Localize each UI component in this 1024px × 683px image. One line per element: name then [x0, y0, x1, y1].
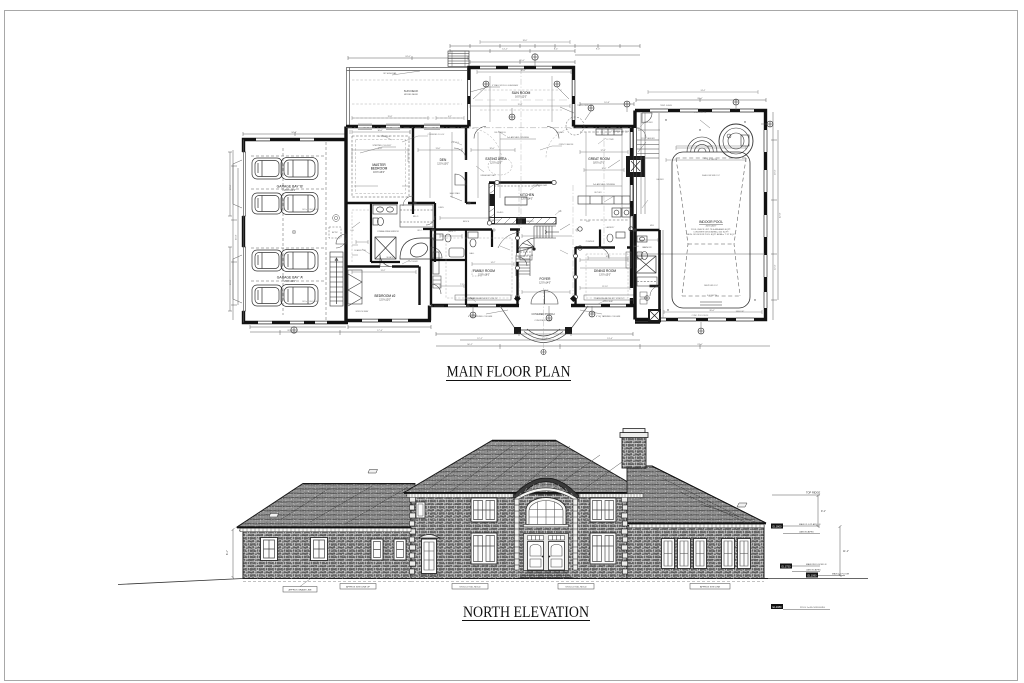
svg-text:TOP RIDGE: TOP RIDGE — [806, 491, 820, 495]
svg-text:TEMP. GLASS: TEMP. GLASS — [660, 104, 673, 107]
svg-text:21'-0": 21'-0" — [519, 60, 525, 62]
svg-text:11'0"x12'0": 11'0"x12'0" — [379, 298, 391, 301]
svg-text:FAMILY ROOM: FAMILY ROOM — [473, 269, 495, 273]
svg-text:15'0"x18'0": 15'0"x18'0" — [478, 273, 490, 276]
svg-text:APPROX SITE LINE: APPROX SITE LINE — [700, 586, 721, 589]
svg-text:CONC. POOL DECK: CONC. POOL DECK — [692, 315, 710, 317]
svg-text:DEEP END 8'-0": DEEP END 8'-0" — [704, 285, 718, 287]
svg-text:20'0"x40'0": 20'0"x40'0" — [706, 226, 717, 228]
svg-text:TEMPERED GL: TEMPERED GL — [694, 112, 707, 114]
svg-text:WOOD DECK: WOOD DECK — [404, 94, 418, 96]
svg-text:INDOOR POOL: INDOOR POOL — [699, 220, 723, 224]
svg-text:8'-1": 8'-1" — [226, 550, 229, 555]
svg-text:UP 16R: UP 16R — [527, 255, 534, 257]
svg-text:DW: DW — [559, 211, 562, 213]
svg-text:PANTRY: PANTRY — [526, 220, 534, 223]
svg-text:6'-2": 6'-2" — [448, 116, 452, 118]
svg-text:42'-8": 42'-8" — [780, 212, 782, 218]
svg-text:NORTH ELEVATION: NORTH ELEVATION — [463, 604, 589, 621]
svg-text:OPEN TO ABOVE: OPEN TO ABOVE — [559, 143, 574, 146]
svg-text:15'-4": 15'-4" — [518, 104, 523, 106]
svg-text:27'-0": 27'-0" — [697, 344, 703, 346]
svg-text:6" SQ TAPERED COLUMN: 6" SQ TAPERED COLUMN — [596, 315, 621, 318]
svg-text:STEAM-FREE MIRROR: STEAM-FREE MIRROR — [377, 230, 399, 233]
svg-text:W.I.C.: W.I.C. — [417, 230, 423, 232]
svg-text:14'-2": 14'-2" — [491, 262, 496, 264]
svg-text:11'-0": 11'-0" — [436, 148, 441, 150]
svg-text:POOL CHECK LIST: TILE AREA AND: POOL CHECK LIST: TILE AREA AND EQPT. — [691, 228, 731, 231]
svg-text:17'-6": 17'-6" — [600, 150, 605, 152]
svg-text:26'0"x23'0": 26'0"x23'0" — [284, 189, 296, 192]
svg-text:BREAKFAST BAR: BREAKFAST BAR — [481, 174, 496, 177]
svg-text:12'-2": 12'-2" — [477, 338, 483, 340]
svg-text:24'-4": 24'-4" — [701, 90, 706, 92]
svg-text:2x6 ARCHED OPENING: 2x6 ARCHED OPENING — [507, 136, 529, 139]
svg-text:POOL LADDER: POOL LADDER — [641, 137, 655, 140]
svg-text:9'-0": 9'-0" — [596, 49, 601, 51]
svg-text:BATH #3: BATH #3 — [643, 246, 652, 249]
svg-text:42" RAISED BAR: 42" RAISED BAR — [533, 184, 548, 187]
svg-text:BENCH: BENCH — [463, 221, 470, 223]
svg-text:22'-6": 22'-6" — [775, 264, 777, 270]
svg-text:TRIPLE PATIO DR: TRIPLE PATIO DR — [577, 104, 593, 107]
svg-text:SUN DECK: SUN DECK — [404, 89, 419, 93]
svg-text:SWIM JET: SWIM JET — [736, 311, 745, 313]
svg-text:COVERED PORCH: COVERED PORCH — [532, 312, 555, 316]
svg-text:APPROX SITE LINE OF: APPROX SITE LINE OF — [346, 586, 370, 589]
svg-text:LANDSCAPED: LANDSCAPED — [806, 568, 821, 571]
svg-text:GARAGE BAY ‘B’: GARAGE BAY ‘B’ — [277, 185, 304, 189]
svg-text:9'-1": 9'-1" — [821, 510, 826, 513]
svg-text:12'-10": 12'-10" — [602, 286, 608, 288]
svg-text:EL1800: EL1800 — [773, 524, 783, 528]
svg-text:BEDROOM: BEDROOM — [371, 167, 388, 171]
svg-text:7'-2": 7'-2" — [460, 284, 464, 286]
svg-text:BEDROOM #2: BEDROOM #2 — [375, 294, 396, 298]
svg-text:ISLAND: ISLAND — [497, 211, 504, 214]
svg-text:KITCHEN: KITCHEN — [520, 193, 535, 197]
svg-text:LINEN: LINEN — [438, 207, 444, 209]
svg-text:HALF WALL: HALF WALL — [450, 192, 460, 195]
svg-text:11'-8": 11'-8" — [544, 290, 549, 292]
svg-text:DEN: DEN — [440, 158, 447, 162]
svg-text:10' TRAY CLG: 10' TRAY CLG — [378, 135, 390, 138]
svg-text:M.BATH: M.BATH — [387, 256, 394, 259]
svg-text:EL1080: EL1080 — [773, 605, 783, 609]
svg-text:DINING ROOM: DINING ROOM — [594, 269, 616, 273]
svg-text:23'-0": 23'-0" — [230, 279, 232, 285]
svg-text:MAIN CLG PLATE LN: MAIN CLG PLATE LN — [799, 523, 821, 526]
svg-text:11'-2": 11'-2" — [381, 270, 386, 272]
svg-text:13'0"x14'0": 13'0"x14'0" — [521, 197, 533, 200]
svg-text:11'-6": 11'-6" — [542, 338, 548, 340]
svg-text:LANDSCAPED: LANDSCAPED — [799, 530, 814, 533]
svg-text:5'x4' SHWR: 5'x4' SHWR — [408, 261, 418, 263]
svg-text:18'0"x17'0": 18'0"x17'0" — [593, 162, 605, 165]
svg-text:16'-0": 16'-0" — [378, 148, 383, 150]
svg-text:18'-6": 18'-6" — [523, 40, 528, 42]
svg-text:8'-0" DEPTH: 8'-0" DEPTH — [707, 295, 718, 297]
svg-text:14'-2": 14'-2" — [502, 49, 508, 51]
svg-text:MECH. ROOM FOR POOL EQPT. AREA: MECH. ROOM FOR POOL EQPT. AREA = 7' DT S… — [686, 233, 736, 236]
svg-text:STUCCO SILL MOLD: STUCCO SILL MOLD — [565, 587, 587, 589]
svg-text:23'-0": 23'-0" — [230, 184, 232, 190]
svg-text:11'-1": 11'-1" — [843, 550, 849, 553]
svg-text:EL1090: EL1090 — [808, 573, 818, 577]
svg-text:EL1750: EL1750 — [782, 564, 792, 568]
svg-text:56'-2": 56'-2" — [467, 344, 473, 346]
svg-text:10'-2": 10'-2" — [606, 256, 611, 258]
svg-text:STEPPED CLG 10'0": STEPPED CLG 10'0" — [373, 145, 392, 147]
svg-text:16'0"x16'0": 16'0"x16'0" — [373, 171, 385, 174]
svg-text:20'-0": 20'-0" — [709, 310, 714, 312]
svg-text:LADDER: LADDER — [656, 178, 664, 181]
svg-text:6" WALL W/ FULL GLASS ABV: 6" WALL W/ FULL GLASS ABV — [492, 84, 519, 87]
svg-text:13'0"x15'0": 13'0"x15'0" — [599, 273, 611, 276]
svg-text:24'-0": 24'-0" — [405, 56, 411, 58]
svg-text:10'-8": 10'-8" — [604, 102, 610, 104]
svg-text:WINDOW SEAT: WINDOW SEAT — [356, 310, 370, 313]
svg-text:13'-4": 13'-4" — [607, 338, 613, 340]
svg-text:12'0"x12'0": 12'0"x12'0" — [490, 162, 502, 165]
svg-text:26'0"x23'0": 26'0"x23'0" — [284, 280, 296, 283]
svg-text:34'-8": 34'-8" — [291, 132, 297, 134]
svg-text:12'0"x14'0": 12'0"x14'0" — [539, 281, 551, 284]
svg-text:SHALLOW END 3'-0": SHALLOW END 3'-0" — [702, 174, 720, 177]
svg-text:GREAT ROOM: GREAT ROOM — [588, 157, 610, 161]
svg-text:46'-8": 46'-8" — [236, 234, 238, 240]
svg-text:MAIN 2B FLOOR LN: MAIN 2B FLOOR LN — [806, 563, 827, 566]
svg-text:LAUNDRY: LAUNDRY — [606, 226, 615, 229]
svg-text:BUTLER: BUTLER — [594, 192, 602, 194]
svg-text:BATH #2: BATH #2 — [448, 230, 455, 233]
svg-text:36" HIGH RAIL: 36" HIGH RAIL — [383, 72, 397, 75]
svg-text:HALL: HALL — [470, 252, 475, 255]
svg-text:MAIN FLOOR PLAN: MAIN FLOOR PLAN — [447, 364, 571, 381]
svg-text:17'-4": 17'-4" — [377, 330, 383, 332]
svg-text:POOL 1st FLOOR LEVEL: POOL 1st FLOOR LEVEL — [800, 606, 826, 609]
svg-text:16'-0": 16'-0" — [377, 130, 382, 132]
svg-text:16'-0": 16'-0" — [520, 70, 525, 72]
svg-text:15'-8": 15'-8" — [388, 116, 393, 118]
svg-text:16'8 x 8' OH DOOR: 16'8 x 8' OH DOOR — [302, 301, 318, 303]
svg-text:COFFERED CLG 10': COFFERED CLG 10' — [428, 134, 446, 136]
svg-text:GARAGE BAY ‘A’: GARAGE BAY ‘A’ — [277, 276, 304, 280]
svg-text:26'-0": 26'-0" — [697, 98, 703, 100]
svg-text:STUCCO SILL MOLD: STUCCO SILL MOLD — [459, 587, 481, 589]
svg-text:CONCRETE DECK AREA = 625 SQ FT: CONCRETE DECK AREA = 625 SQ FT — [693, 231, 729, 234]
svg-text:APPROX GRADE LINE: APPROX GRADE LINE — [289, 589, 313, 592]
svg-text:12'-0": 12'-0" — [489, 148, 494, 150]
svg-text:W.I.C.: W.I.C. — [413, 216, 419, 218]
svg-text:20'-0": 20'-0" — [775, 169, 777, 175]
svg-text:2x6 ARCHED OPENING: 2x6 ARCHED OPENING — [593, 183, 615, 186]
svg-text:TRANSOM ABOVE 8'0" LITE 2'0": TRANSOM ABOVE 8'0" LITE 2'0" — [594, 297, 624, 300]
svg-text:16'8 x 8' OH DOOR: 16'8 x 8' OH DOOR — [302, 209, 318, 211]
svg-text:10' TRAY: 10' TRAY — [606, 138, 614, 141]
svg-text:MAIN 1st FLOOR: MAIN 1st FLOOR — [832, 572, 850, 575]
svg-text:3'-6" DEPTH: 3'-6" DEPTH — [707, 159, 718, 161]
svg-text:BATH: BATH — [634, 245, 640, 248]
svg-text:26'-0": 26'-0" — [287, 330, 293, 332]
svg-text:16'-0": 16'-0" — [707, 146, 712, 148]
svg-text:POWDER: POWDER — [586, 241, 595, 243]
svg-text:MUD: MUD — [650, 225, 655, 227]
svg-text:ATTIC: ATTIC — [332, 231, 338, 234]
svg-text:11'0"x13'0": 11'0"x13'0" — [437, 163, 449, 166]
svg-text:8'-4": 8'-4" — [554, 49, 559, 51]
svg-text:FOYER: FOYER — [540, 277, 552, 281]
